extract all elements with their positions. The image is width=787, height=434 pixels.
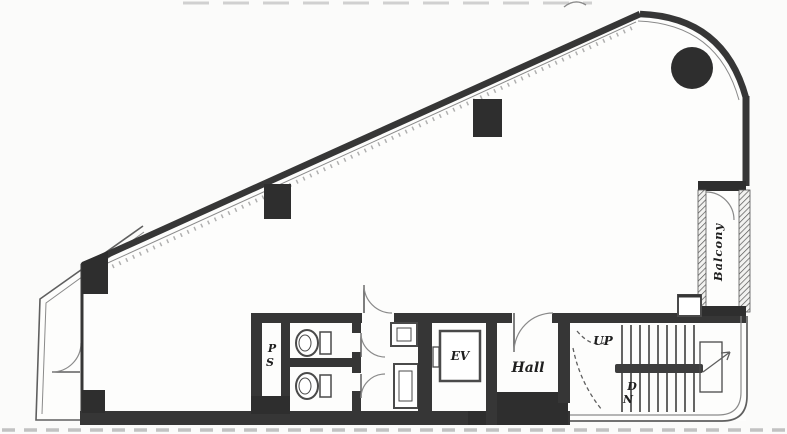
toilet-tank (320, 375, 331, 397)
column (264, 184, 291, 219)
sink-icon (391, 323, 417, 346)
balcony-label: Balcony (711, 223, 725, 283)
stairwell: UP D N (570, 316, 747, 421)
stairs-down-label-d: D (626, 380, 637, 393)
wall-segment (558, 313, 570, 403)
stall-divider-wall (288, 358, 354, 367)
pipe-shaft-label-s: S (266, 356, 274, 369)
scan-artifact-top (183, 2, 592, 7)
wall-segment (352, 323, 361, 333)
stairs-down-label-n: N (622, 393, 634, 406)
floor-plan: P S EV Hall (0, 0, 787, 434)
elevator-door-jamb (433, 347, 439, 367)
floor-plan-page: P S EV Hall (0, 0, 787, 434)
pipe-shaft: P S (251, 313, 290, 425)
wall-segment (486, 313, 497, 425)
round-column (671, 47, 713, 89)
stairs-up-label: UP (593, 334, 613, 348)
column (82, 390, 105, 413)
partition-top-wall (251, 313, 746, 323)
balcony-railing (739, 190, 750, 312)
wall-segment (251, 313, 362, 323)
hall-label: Hall (511, 360, 545, 376)
wall-segment (698, 306, 746, 316)
pipe-shaft-label-p: P (267, 342, 277, 355)
elevator: EV (432, 313, 497, 425)
elevator-label: EV (450, 349, 471, 363)
balcony-wall-hatched (698, 190, 706, 312)
hall: Hall (497, 313, 570, 403)
toilet-tank (320, 332, 331, 354)
hall-floor (497, 323, 560, 392)
balcony-box (678, 295, 701, 316)
column (473, 99, 502, 137)
wall-segment (352, 391, 361, 411)
wall-segment (251, 396, 290, 414)
wall-segment (352, 352, 361, 373)
stair-center-rail (615, 364, 703, 373)
wall-segment (698, 181, 746, 191)
wall-segment (418, 313, 432, 425)
column (82, 251, 108, 294)
